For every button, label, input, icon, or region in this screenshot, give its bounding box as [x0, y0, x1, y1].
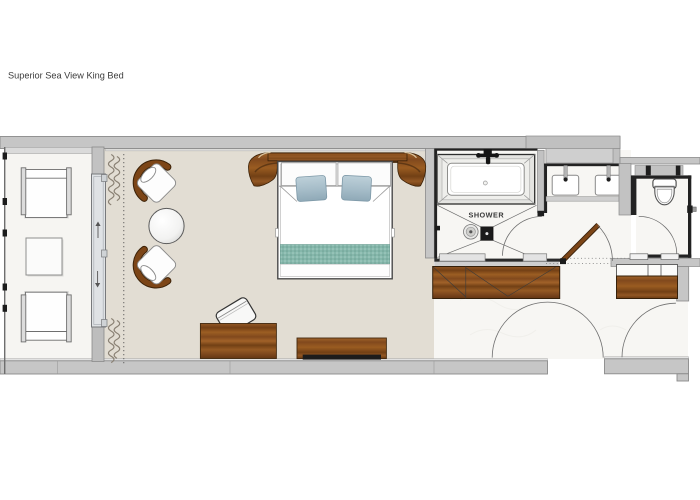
svg-text:Superior Sea View King Bed: Superior Sea View King Bed — [8, 71, 124, 81]
svg-text:SHOWER: SHOWER — [469, 210, 505, 219]
